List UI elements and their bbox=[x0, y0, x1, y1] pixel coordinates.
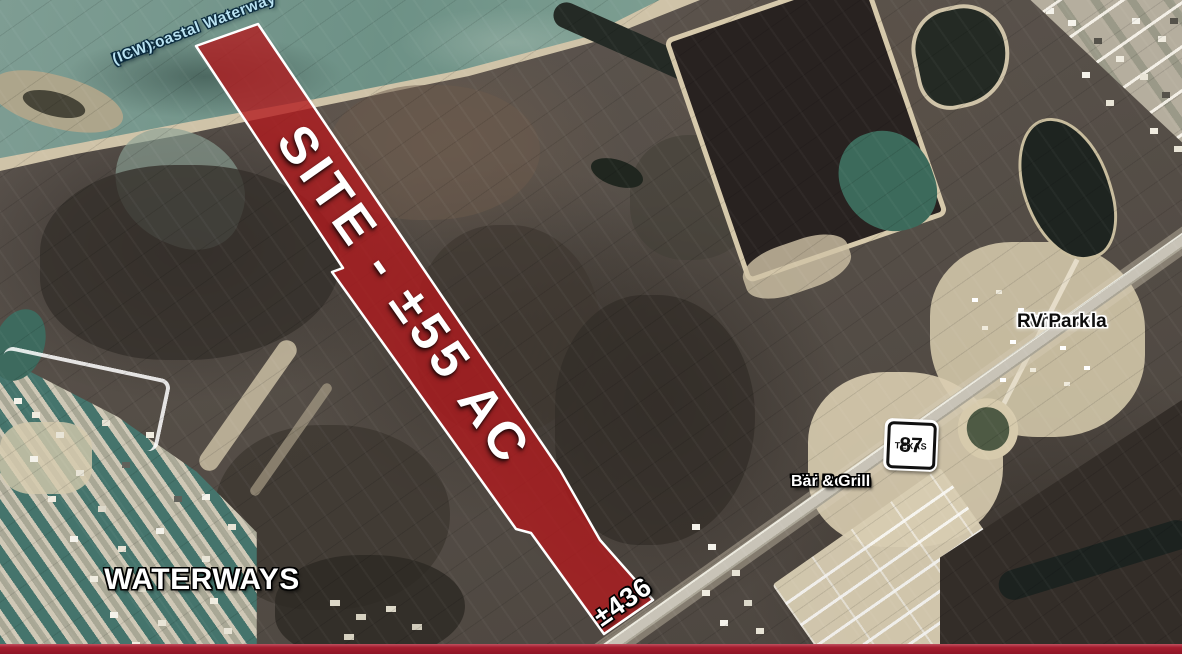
rv-label-line3: RV Park bbox=[1017, 311, 1090, 332]
texas-87-highway-shield: 87 TEXAS bbox=[883, 418, 939, 472]
highway-state: TEXAS bbox=[895, 440, 928, 451]
waterways-neighborhood-label: WATERWAYS bbox=[104, 563, 300, 598]
highway-shield-border: 87 TEXAS bbox=[885, 420, 936, 469]
aerial-site-map: Intracoastal Waterway (ICW) SITE - ±55 A… bbox=[0, 0, 1182, 654]
site-boundary-layer bbox=[0, 0, 1182, 654]
footer-accent-bar bbox=[0, 644, 1182, 654]
tiki-label-line2: Bar & Grill bbox=[791, 473, 870, 491]
